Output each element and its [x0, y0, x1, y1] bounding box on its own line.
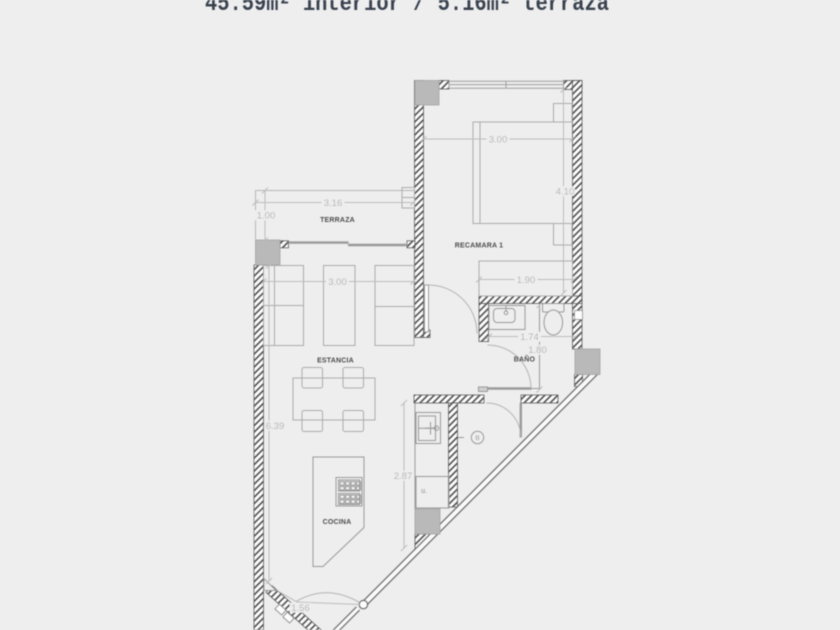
- svg-text:45.59m² interior / 5.16m² terr: 45.59m² interior / 5.16m² terraza: [205, 0, 609, 18]
- svg-text:B: B: [475, 435, 479, 442]
- svg-text:1.80: 1.80: [528, 345, 547, 356]
- svg-text:4.10: 4.10: [556, 187, 575, 198]
- svg-text:1.90: 1.90: [517, 275, 536, 286]
- svg-text:COCINA: COCINA: [323, 519, 352, 526]
- svg-text:TERRAZA: TERRAZA: [320, 217, 355, 224]
- svg-text:ESTANCIA: ESTANCIA: [317, 358, 354, 365]
- svg-text:RECAMARA 1: RECAMARA 1: [455, 243, 503, 250]
- svg-text:3.00: 3.00: [328, 277, 347, 288]
- svg-text:u.: u.: [421, 488, 427, 495]
- svg-text:6.39: 6.39: [266, 421, 285, 432]
- svg-text:3.16: 3.16: [324, 198, 343, 209]
- svg-text:3.00: 3.00: [489, 135, 508, 146]
- svg-text:BAÑO: BAÑO: [514, 355, 536, 364]
- svg-text:1.00: 1.00: [257, 211, 276, 222]
- svg-text:1.74: 1.74: [520, 332, 539, 343]
- svg-text:1.56: 1.56: [291, 603, 310, 614]
- svg-text:2.87: 2.87: [394, 471, 413, 482]
